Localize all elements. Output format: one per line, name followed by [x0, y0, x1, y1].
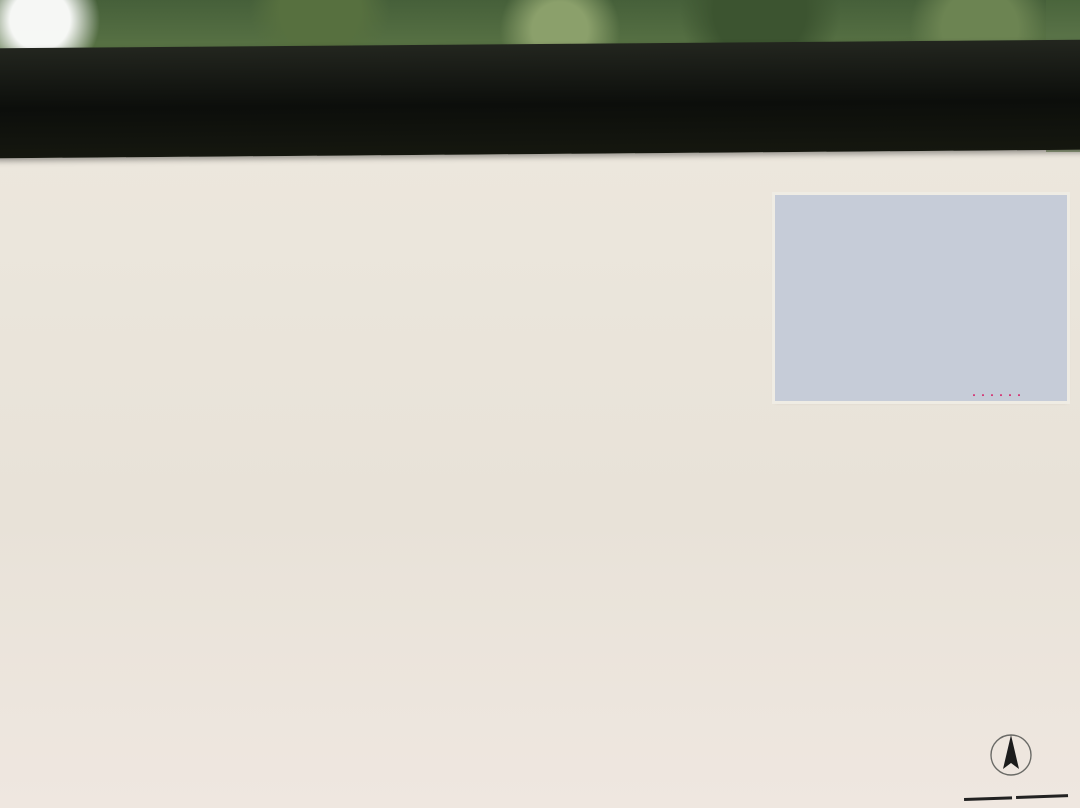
- park-sign-photo: { "sign": { "prefix": "京都立", "title": "砧…: [0, 0, 1080, 808]
- scale-bar: [960, 785, 1075, 808]
- inset-area-map: [775, 195, 1067, 401]
- promenade-legend: ・・・・・・: [970, 390, 1024, 401]
- sign-title-bar: [0, 40, 1080, 159]
- compass-rose: [988, 732, 1034, 782]
- dotted-line-sample: ・・・・・・: [970, 391, 1024, 400]
- compass-needle: [988, 732, 1034, 778]
